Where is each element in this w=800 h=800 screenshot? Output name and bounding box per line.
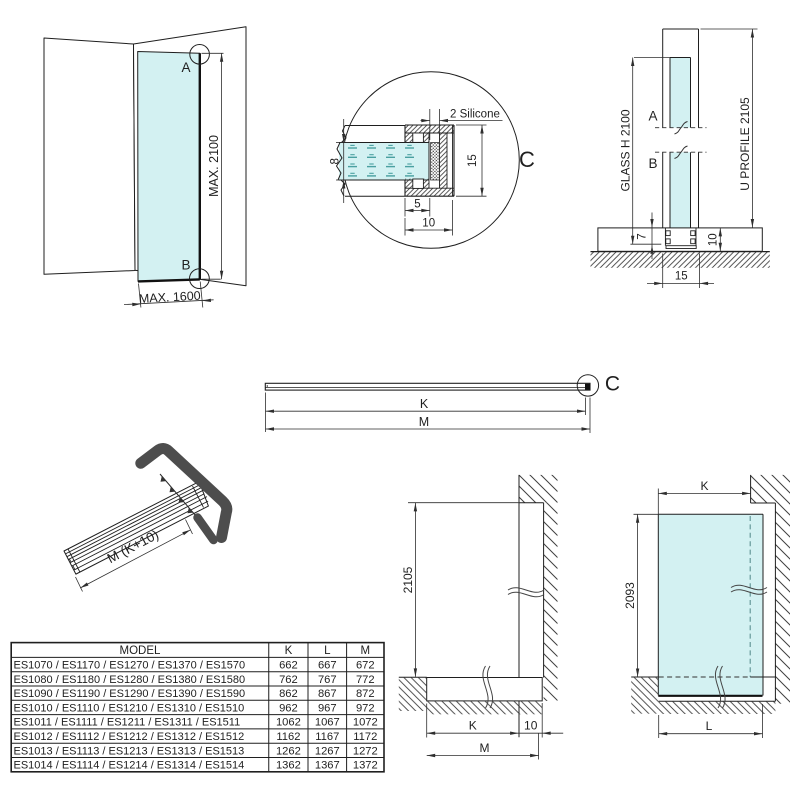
svg-text:772: 772 [356,674,375,686]
svg-text:C: C [605,373,620,396]
svg-text:A: A [648,108,657,123]
svg-text:1262: 1262 [276,745,301,757]
svg-text:ES1070 / ES1170 / ES1270 / ES1: ES1070 / ES1170 / ES1270 / ES1370 / ES15… [14,659,246,671]
svg-text:2 Silicone: 2 Silicone [450,109,500,121]
svg-text:5: 5 [414,199,420,211]
svg-text:1162: 1162 [276,731,300,743]
svg-text:1062: 1062 [276,717,301,729]
svg-text:ES1014 / ES1114 / ES1214 / ES1: ES1014 / ES1114 / ES1214 / ES1314 / ES15… [14,760,245,772]
svg-text:M: M [419,415,429,429]
svg-text:8: 8 [330,158,342,164]
svg-text:7: 7 [637,233,649,239]
svg-text:U PROFILE 2105: U PROFILE 2105 [738,97,752,191]
svg-text:GLASS H 2100: GLASS H 2100 [618,109,632,191]
svg-text:1167: 1167 [315,731,339,743]
svg-text:L: L [324,645,331,657]
svg-text:C: C [519,147,535,172]
svg-text:15: 15 [467,154,479,167]
svg-text:1372: 1372 [353,760,378,772]
svg-text:1267: 1267 [315,745,340,757]
svg-text:B: B [648,156,657,171]
svg-text:K: K [420,397,429,411]
svg-text:MAX. 1600: MAX. 1600 [139,289,202,306]
svg-text:872: 872 [356,688,375,700]
svg-text:1072: 1072 [353,717,378,729]
svg-text:M: M [480,741,490,755]
svg-text:1367: 1367 [315,760,340,772]
svg-text:10: 10 [524,719,538,733]
svg-text:867: 867 [318,688,337,700]
svg-text:662: 662 [279,659,298,671]
svg-text:767: 767 [318,674,337,686]
svg-text:862: 862 [279,688,298,700]
svg-text:ES1011 / ES1111 / ES1211 / ES1: ES1011 / ES1111 / ES1211 / ES1311 / ES15… [14,717,241,729]
svg-text:MODEL: MODEL [120,645,162,657]
svg-text:ES1012 / ES1112 / ES1212 / ES1: ES1012 / ES1112 / ES1212 / ES1312 / ES15… [14,731,245,743]
svg-text:K: K [700,479,708,493]
svg-text:B: B [181,258,190,273]
svg-text:2105: 2105 [401,566,415,593]
svg-text:1067: 1067 [315,717,340,729]
svg-text:1362: 1362 [276,760,301,772]
svg-text:1272: 1272 [353,745,378,757]
svg-text:972: 972 [356,702,375,714]
svg-text:ES1080 / ES1180 / ES1280 / ES1: ES1080 / ES1180 / ES1280 / ES1380 / ES15… [14,674,246,686]
svg-text:967: 967 [318,702,337,714]
svg-text:1172: 1172 [353,731,377,743]
svg-text:K: K [285,645,293,657]
svg-text:672: 672 [356,659,375,671]
svg-text:15: 15 [675,271,688,283]
svg-text:667: 667 [318,659,337,671]
svg-text:ES1090 / ES1190 / ES1290 / ES1: ES1090 / ES1190 / ES1290 / ES1390 / ES15… [14,688,246,700]
svg-text:10: 10 [708,233,720,246]
svg-text:MAX. 2100: MAX. 2100 [207,135,221,197]
svg-text:2093: 2093 [623,582,637,609]
svg-text:762: 762 [279,674,298,686]
svg-text:10: 10 [422,218,435,230]
svg-text:K: K [469,719,477,733]
svg-text:962: 962 [279,702,298,714]
svg-text:A: A [181,60,190,75]
svg-text:ES1013 / ES1113 / ES1213 / ES1: ES1013 / ES1113 / ES1213 / ES1313 / ES15… [14,745,245,757]
svg-text:M: M [361,645,371,657]
svg-text:ES1010 / ES1110 / ES1210 / ES1: ES1010 / ES1110 / ES1210 / ES1310 / ES15… [14,702,245,714]
svg-text:L: L [706,719,713,733]
